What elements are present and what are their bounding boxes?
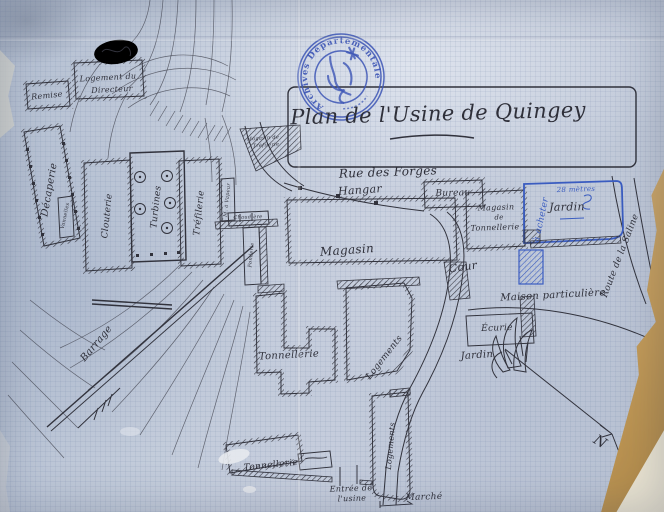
archival-plan-scan: Archives Départementales Plan de l'Usine…	[0, 0, 664, 512]
edge-vignette	[0, 0, 664, 512]
